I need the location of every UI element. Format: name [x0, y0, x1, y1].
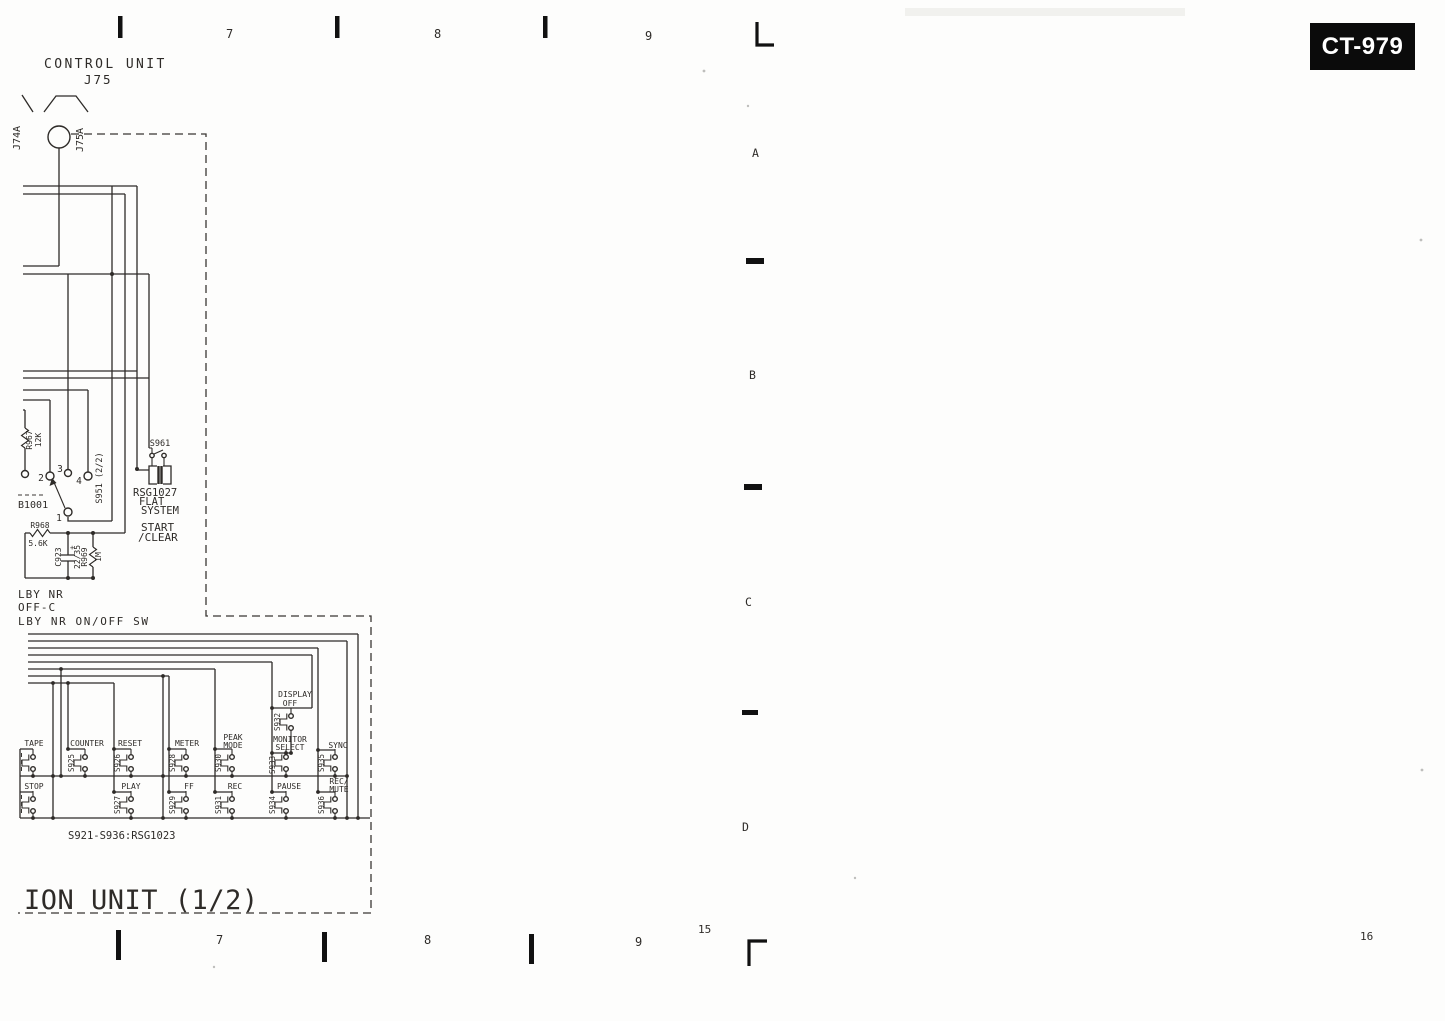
- switch-label: PLAY: [121, 782, 140, 791]
- resistor-ref: R968: [30, 521, 49, 530]
- switch-label: SYNC: [328, 741, 347, 750]
- rotary-ref: B1001: [18, 500, 48, 511]
- switch-label: METER: [175, 739, 199, 748]
- grid-col-label: 8: [434, 27, 441, 41]
- resistor-value: 5.6K: [28, 539, 47, 548]
- switch-label: REC: [228, 782, 243, 791]
- grid-col-label: 7: [216, 933, 223, 947]
- grid-col-label: 9: [635, 935, 642, 949]
- grid-row-label: A: [752, 146, 759, 160]
- grid-col-label: 9: [645, 29, 652, 43]
- grid-row-label: B: [749, 368, 756, 382]
- rotary-switch-id: S951 (2/2): [95, 452, 105, 503]
- grid-reference-marks: 7 8 9 7 8 9 A B C D 15 16: [116, 16, 1373, 966]
- pin-label-j74a: J74A: [12, 126, 23, 150]
- connector-housing-outline: [22, 95, 88, 112]
- resistor-zigzag-r968: [30, 530, 50, 537]
- rotary-switch-s951: 2 3 4 1 B1001 S951 (2/2): [18, 452, 105, 524]
- dolby-label-3: LBY NR ON/OFF SW: [18, 615, 150, 628]
- switch-label: PAUSE: [277, 782, 301, 791]
- switch-label: OFF: [283, 699, 298, 708]
- switch-label: TAPE: [24, 739, 43, 748]
- switch-ff: FF S929: [168, 782, 194, 819]
- top-tick-3: [543, 16, 548, 38]
- switch-ref: S930: [214, 753, 223, 772]
- switch-pause: PAUSE S934: [268, 782, 301, 819]
- switch-rec: REC S931: [214, 782, 242, 819]
- bottom-tick-2: [322, 932, 327, 962]
- top-tick-2: [335, 16, 340, 38]
- dolby-label-2: OFF-C: [18, 601, 56, 614]
- corner-mark-bottom: [749, 941, 767, 966]
- switch-counter: COUNTER S925: [67, 739, 104, 777]
- switch-ref: S934: [268, 795, 277, 814]
- switch-display-off: DISPLAY OFF S932: [273, 690, 312, 736]
- switch-ref: S931: [214, 796, 223, 814]
- switch-rec-mute: REC/ MUTE S936: [317, 777, 349, 819]
- side-dash-1: [746, 258, 764, 264]
- switch-label: COUNTER: [70, 739, 104, 748]
- grid-col-label: 8: [424, 933, 431, 947]
- s961-flat-system: S961 RSG1027 FLAT SYSTEM START /CLEAR: [133, 439, 179, 544]
- dolby-labels: LBY NR OFF-C LBY NR ON/OFF SW: [18, 588, 150, 628]
- control-unit-title: CONTROL UNIT: [44, 57, 167, 72]
- switch-ref: S926: [113, 753, 122, 772]
- switch-play: PLAY S927: [113, 782, 141, 819]
- switch-ref: S928: [168, 753, 177, 772]
- rotary-pos-2: 2: [38, 473, 44, 484]
- capacitor-ref: C923: [54, 547, 63, 566]
- switch-ref: S935: [317, 754, 326, 772]
- rotary-pos-3: 3: [57, 464, 63, 475]
- rotary-pos-1: 1: [56, 513, 62, 524]
- side-dash-2: [744, 484, 762, 490]
- resistor-ref: R967: [25, 430, 34, 449]
- switch-label: DISPLAY: [278, 690, 312, 699]
- connector-brackets: [137, 466, 171, 484]
- model-badge: CT-979: [1310, 23, 1415, 70]
- switch-group-note: S921-S936:RSG1023: [68, 830, 175, 842]
- switch-tape: TAPE: [22, 739, 44, 777]
- switch-stop: STOP: [22, 782, 44, 819]
- switch-label: STOP: [24, 782, 43, 791]
- page-number-right: 16: [1360, 930, 1373, 943]
- switch-ref: S929: [168, 796, 177, 814]
- schematic-canvas: 7 8 9 7 8 9 A B C D 15 16 CONTROL UNIT J…: [0, 0, 1445, 1021]
- unit-title: ION UNIT (1/2): [24, 885, 259, 916]
- connector-pin-circle: [48, 126, 70, 148]
- switch-ref: S936: [317, 795, 326, 814]
- switch-label: RESET: [118, 739, 142, 748]
- switch-monitor-select: MONITOR SELECT S933: [268, 735, 307, 777]
- grid-col-label: 7: [226, 27, 233, 41]
- start-clear-line2: /CLEAR: [138, 531, 178, 544]
- switch-meter: METER S928: [168, 739, 199, 777]
- page-number-left: 15: [698, 923, 711, 936]
- pin-label-j75a: J75A: [75, 128, 86, 152]
- rotary-pos-4: 4: [76, 476, 82, 487]
- resistor-value: 12K: [34, 433, 43, 448]
- control-unit-connector: CONTROL UNIT J75 J74A J75A: [12, 57, 167, 152]
- switch-ref: S925: [67, 754, 76, 772]
- dolby-label-1: LBY NR: [18, 588, 64, 601]
- grid-row-label: C: [745, 595, 752, 609]
- bottom-tick-3: [529, 934, 534, 964]
- resistor-r967: R967 12K: [22, 428, 44, 450]
- resistor-value: 1M: [94, 552, 103, 562]
- switch-label: SELECT: [276, 743, 305, 752]
- switch-ref: S933: [268, 756, 277, 774]
- top-tick-1: [118, 16, 123, 38]
- switch-label: MODE: [223, 741, 242, 750]
- switch-label: FF: [184, 782, 194, 791]
- resistor-ref: R969: [80, 547, 89, 566]
- rotary-wiper-arm: [53, 480, 65, 508]
- bottom-tick-1: [116, 930, 121, 960]
- switch-peak-mode: PEAK MODE S930: [214, 733, 243, 777]
- switch-label: MUTE: [329, 785, 348, 794]
- switch-ref: S927: [113, 796, 122, 814]
- switch-ref: S932: [273, 713, 282, 731]
- matrix-wire-harness: [20, 634, 370, 820]
- grid-row-label: D: [742, 820, 749, 834]
- switch-sync: SYNC S935: [317, 741, 348, 777]
- switch-reset: RESET S926: [113, 739, 142, 777]
- connector-plates: [159, 466, 162, 484]
- switch-ref-s961: S961: [150, 439, 170, 449]
- scan-artifacts: [213, 8, 1424, 968]
- flat-system-line2: SYSTEM: [141, 505, 179, 517]
- side-dash-3: [742, 710, 758, 715]
- rc-network: R968 5.6K C923 + 22/35 R969 1M: [25, 521, 125, 580]
- connector-designator: J75: [84, 72, 113, 87]
- corner-mark-top: [757, 22, 774, 45]
